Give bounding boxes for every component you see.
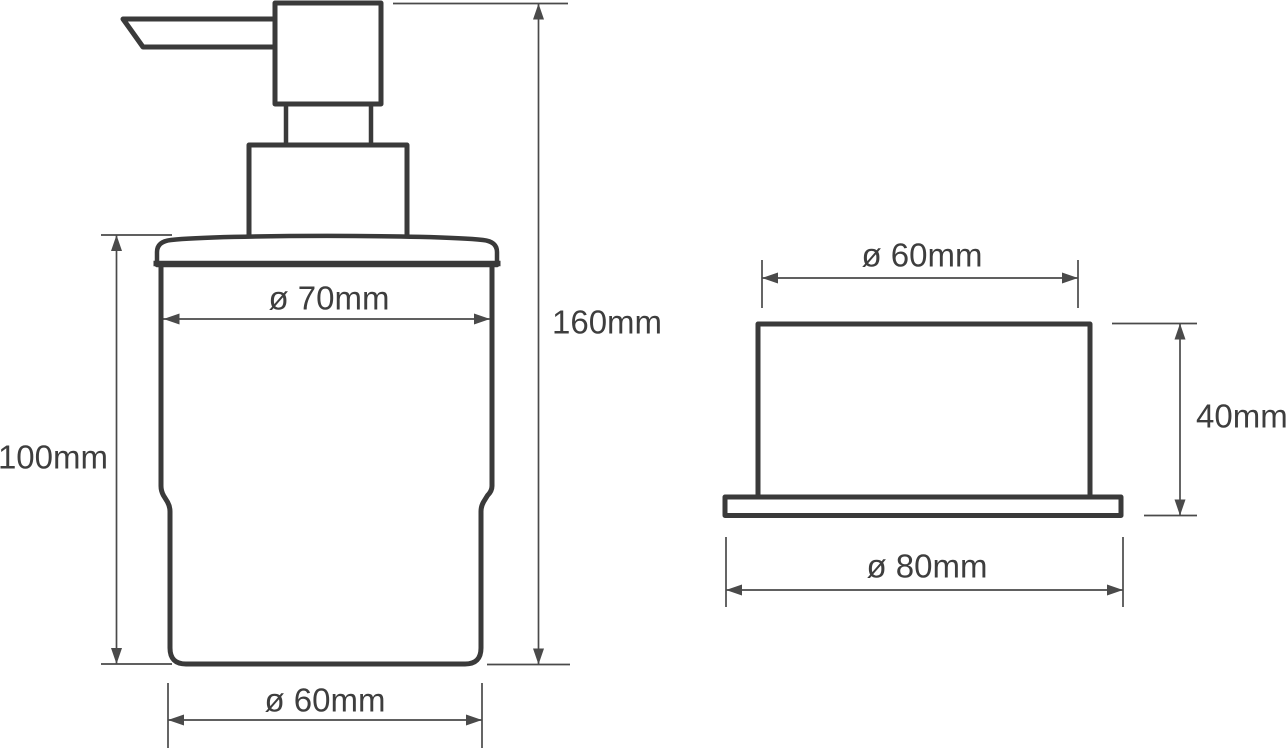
pump-spout xyxy=(123,19,280,47)
pump-collar xyxy=(249,145,407,239)
holder-front-view xyxy=(725,324,1121,516)
dim-label-total-height: 160mm xyxy=(552,304,662,341)
dispenser-lid xyxy=(157,236,497,265)
dispenser-side-view xyxy=(123,3,501,664)
dispenser-body xyxy=(161,262,492,664)
dim-label-flange-diameter: ø 80mm xyxy=(866,548,987,585)
pump-head xyxy=(275,3,381,104)
pump-neck xyxy=(286,104,371,145)
holder-flange xyxy=(725,497,1121,516)
dim-label-holder-height: 40mm xyxy=(1196,398,1287,435)
technical-drawing-canvas: ø 70mm ø 60mm 100mm 160mm ø 60mm 40mm xyxy=(0,0,1287,749)
dim-label-cup-diameter: ø 60mm xyxy=(861,237,982,274)
holder-cup xyxy=(758,324,1090,497)
dim-label-body-diameter: ø 70mm xyxy=(268,280,389,317)
dim-label-body-height: 100mm xyxy=(0,439,108,476)
dim-label-base-diameter: ø 60mm xyxy=(264,682,385,719)
dimension-diagram-svg: ø 70mm ø 60mm 100mm 160mm ø 60mm 40mm xyxy=(0,0,1287,749)
